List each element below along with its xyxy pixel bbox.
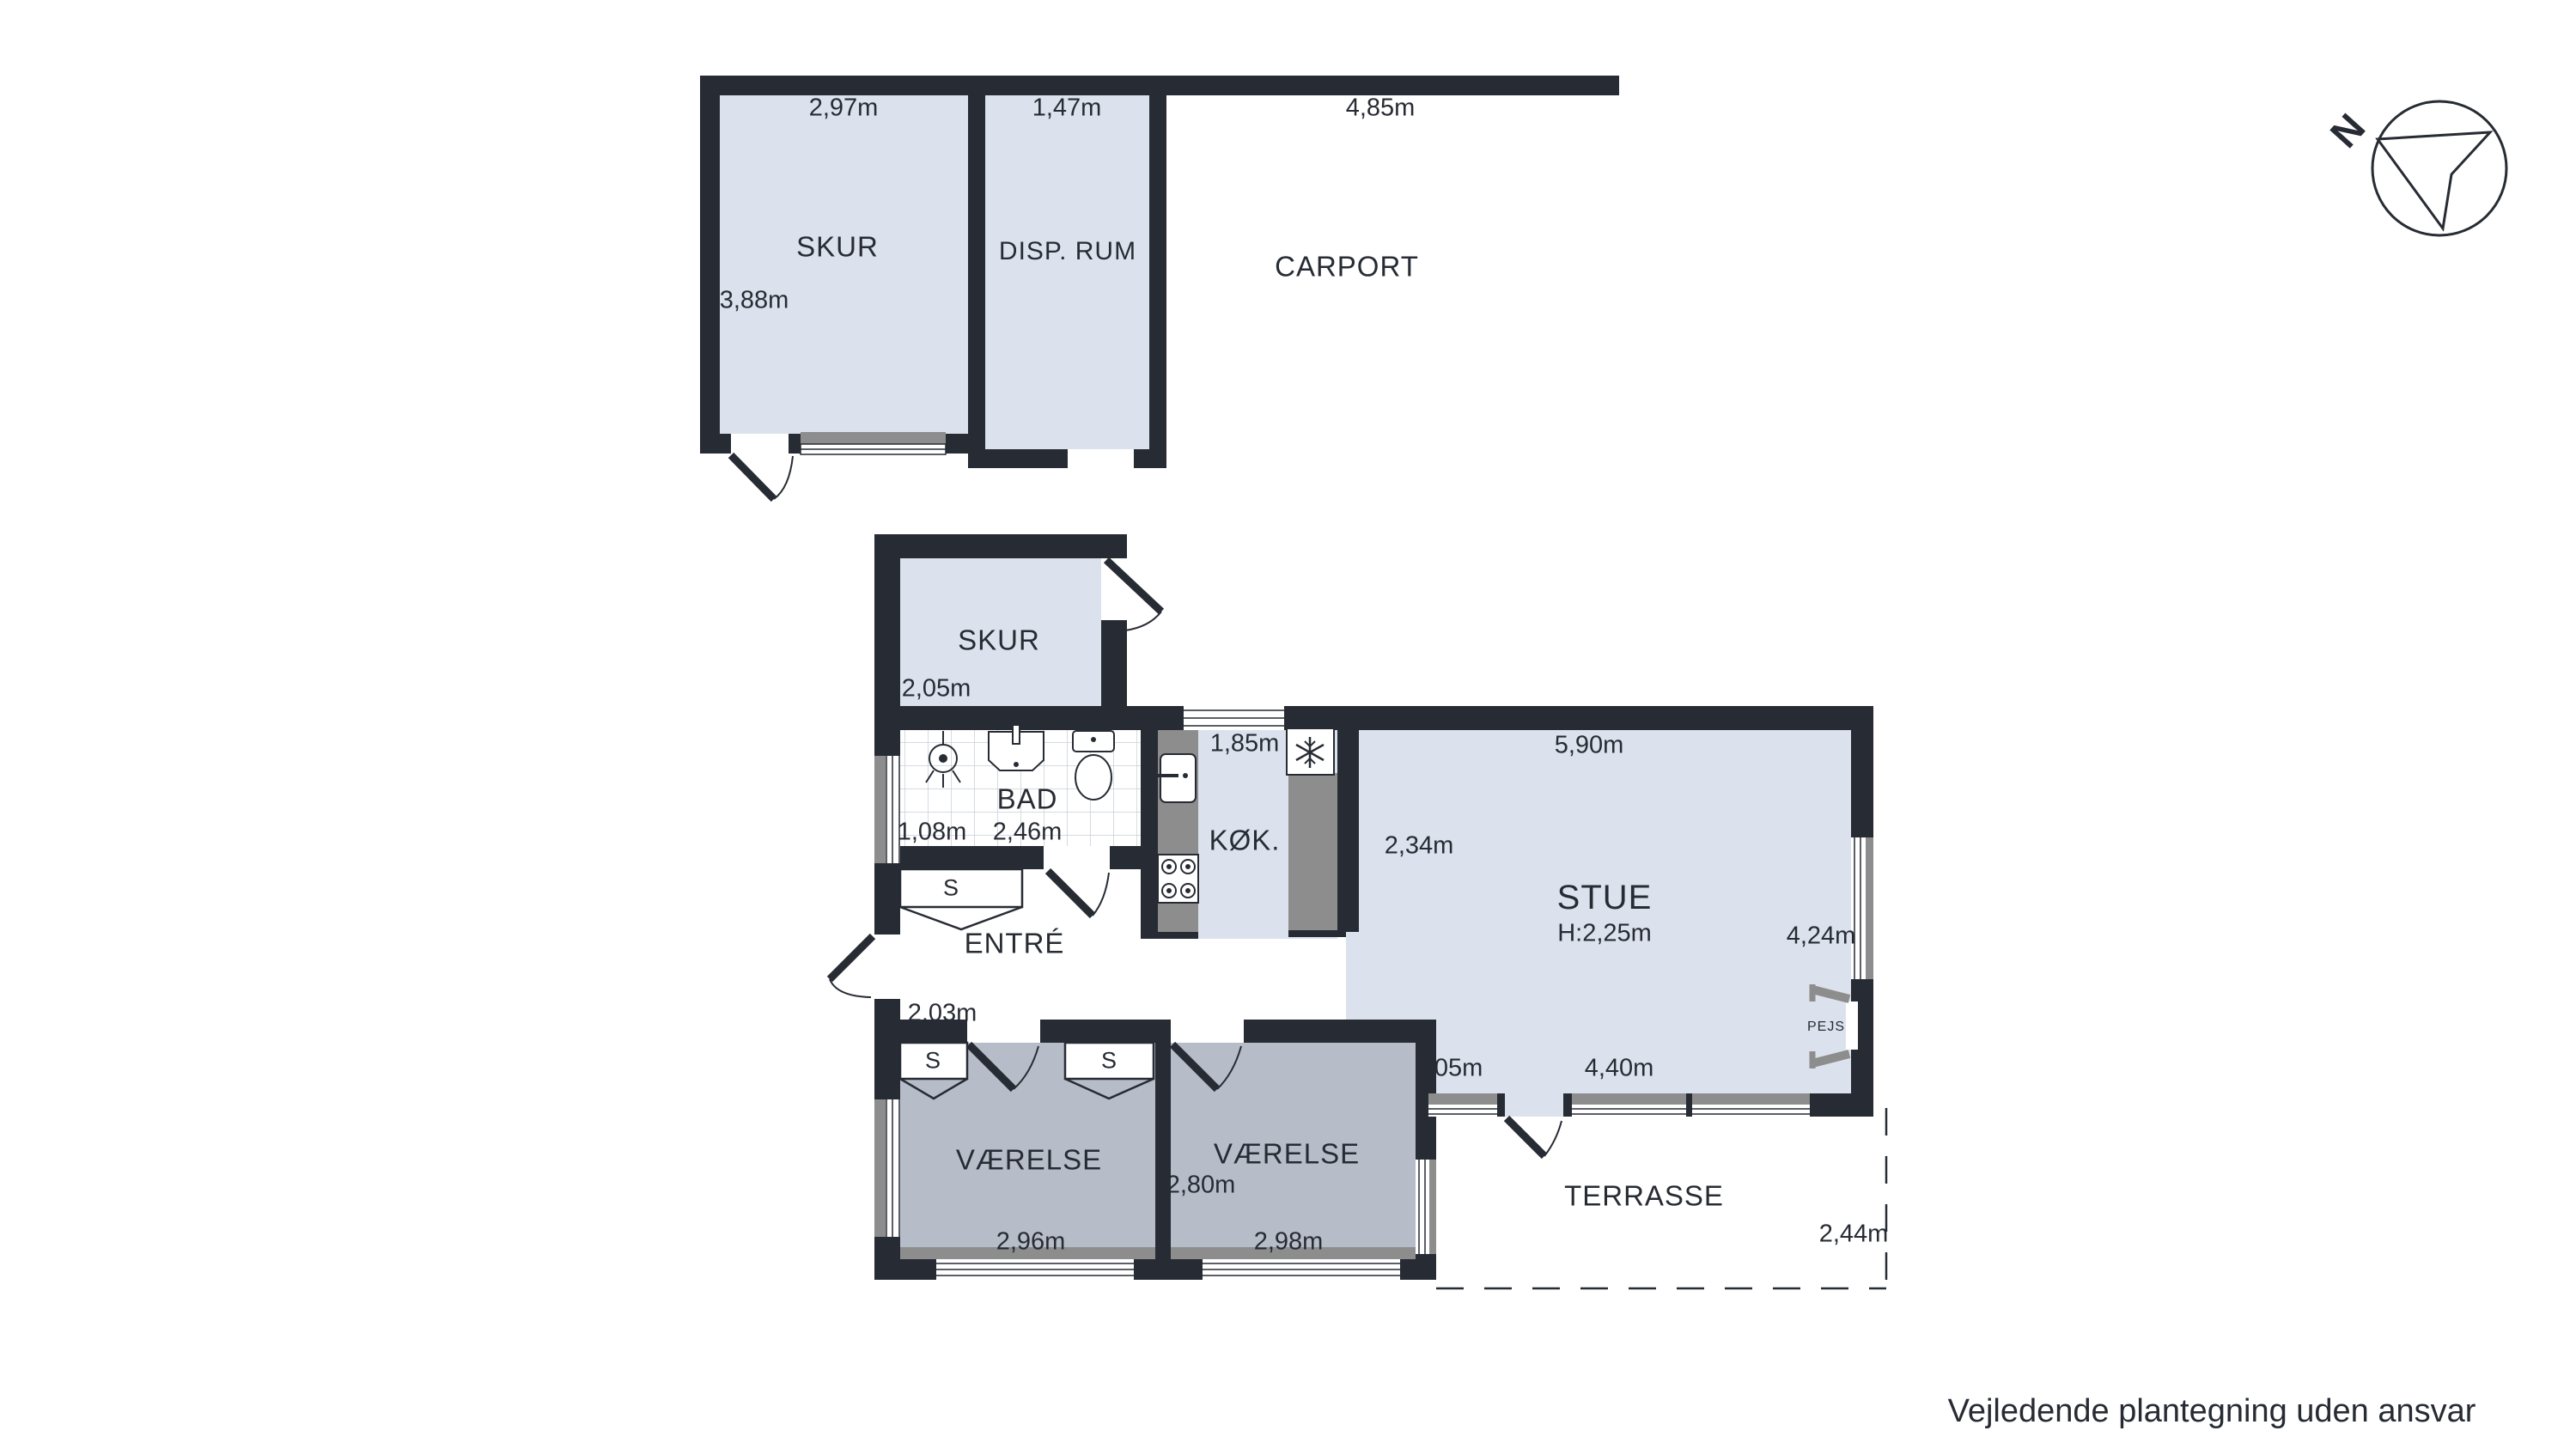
stue-right-window-icon [1851,837,1873,979]
room-label-vaerelse1: VÆRELSE [956,1146,1102,1174]
bad-door-icon [1048,871,1109,916]
vaerelse2-bottom-window-icon [1203,1259,1400,1280]
compass-icon [2372,101,2506,235]
floor-plan-canvas: 2,97m SKUR 3,88m 1,47m DISP. RUM 4,85m C… [0,0,2576,1449]
room-label-kok: KØK. [1209,826,1281,855]
house-skur-door-icon [1106,560,1161,630]
dim-vaerelse2-width: 2,98m [1254,1230,1324,1255]
dim-bad-right: 2,46m [993,820,1063,845]
entre-closet-icon [900,869,1022,929]
disclaimer-text: Vejledende plantegning uden ansvar [1948,1395,2476,1428]
dim-bad-left: 1,08m [898,820,967,845]
dim-stue-bottom: 4,40m [1585,1056,1654,1081]
vaerelse1-bottom-window-icon [936,1259,1134,1280]
dim-house-skur-width: 2,05m [902,677,971,702]
toilet-icon [1073,731,1114,800]
garage-door-icon [801,432,946,454]
kok-window-icon [1184,706,1284,730]
terrasse-door-icon [1507,1118,1562,1156]
entre-closet-label: S [943,877,959,900]
outbuilding-skur-door-icon [731,455,793,499]
room-label-terrasse: TERRASSE [1564,1182,1724,1210]
dim-entre-width: 2,03m [908,1002,977,1026]
room-label-house-skur: SKUR [958,626,1040,654]
stue-bottom-window-right-icon [1572,1093,1810,1117]
dim-outbuilding-skur-height: 3,88m [720,289,789,314]
dim-stue-top: 5,90m [1555,734,1624,758]
vaerelse2-right-window-icon [1416,1160,1436,1254]
room-label-disp-rum: DISP. RUM [999,239,1136,265]
room-label-stue: STUE [1557,880,1653,915]
dim-outbuilding-skur-width: 2,97m [809,96,879,121]
room-label-vaerelse2: VÆRELSE [1214,1140,1360,1168]
dim-disp-rum-width: 1,47m [1032,96,1102,121]
front-door-icon [830,936,873,997]
fridge-snowflake-icon [1287,728,1334,775]
kitchen-sink-icon [1156,754,1196,802]
vaerelse1-closet-label: S [925,1050,941,1073]
dim-terrasse-width: 2,44m [1819,1222,1889,1247]
dim-stue-left: 2,34m [1385,834,1454,859]
outbuilding-room-fills [720,95,1149,449]
dim-vaerelse1-width: 2,96m [996,1230,1066,1255]
room-label-entre: ENTRÉ [965,929,1065,958]
dim-kok-width: 1,85m [1210,732,1280,757]
stue-bottom-window-left-icon [1428,1093,1497,1117]
dim-vaerelse2-height: 2,80m [1166,1173,1236,1198]
dim-carport-width: 4,85m [1346,96,1416,121]
kitchen-counter-right [1288,773,1337,930]
bad-window-icon [874,756,900,863]
fireplace-label: PEJS [1807,1020,1845,1034]
dim-stue-ceiling: H:2,25m [1557,922,1652,947]
vaerelse1-closet2-label: S [1101,1050,1117,1073]
dim-stue-right: 4,24m [1787,924,1856,949]
room-label-carport: CARPORT [1275,253,1419,281]
vaerelse1-side-window-icon [874,1099,900,1237]
dim-stue-bottom-left: 1,05m [1414,1056,1483,1081]
room-label-bad: BAD [997,785,1058,813]
room-label-outbuilding-skur: SKUR [796,233,879,261]
stove-icon [1158,855,1198,903]
sink-icon [989,725,1044,770]
